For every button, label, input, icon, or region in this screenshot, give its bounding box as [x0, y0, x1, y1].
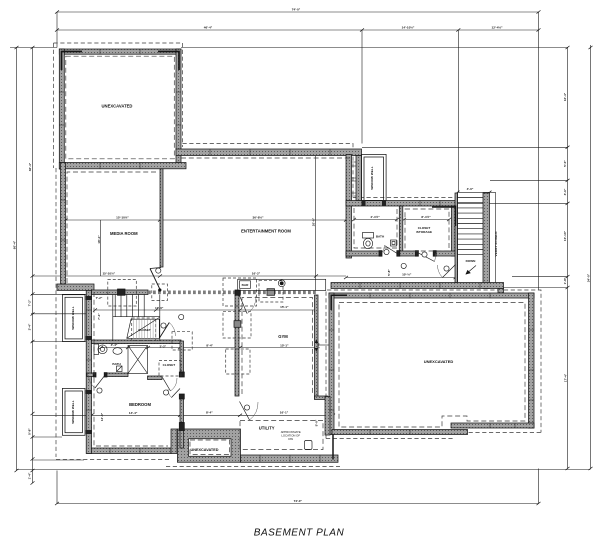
- svg-text:4'-4": 4'-4": [111, 343, 118, 347]
- svg-text:5'-0": 5'-0": [315, 419, 319, 426]
- svg-text:12'-0": 12'-0": [100, 412, 104, 421]
- svg-text:36'-8½": 36'-8½": [253, 216, 265, 220]
- svg-text:16'-1": 16'-1": [280, 410, 289, 414]
- svg-text:12'-4½": 12'-4½": [492, 26, 504, 30]
- svg-text:UNEXCAVATED: UNEXCAVATED: [424, 359, 454, 364]
- svg-text:DOWN: DOWN: [466, 259, 477, 263]
- svg-text:3'-0": 3'-0": [317, 341, 321, 348]
- svg-text:GYM: GYM: [278, 334, 288, 339]
- svg-text:UNEXCAVATED: UNEXCAVATED: [102, 104, 133, 109]
- svg-text:8'-4": 8'-4": [206, 344, 213, 348]
- svg-text:34'-0": 34'-0": [587, 273, 591, 282]
- svg-text:14'-4": 14'-4": [129, 411, 138, 415]
- svg-text:BATH: BATH: [112, 362, 121, 366]
- svg-text:10'-½": 10'-½": [402, 272, 412, 276]
- svg-text:CLOSET: CLOSET: [138, 328, 151, 332]
- svg-text:4'-0": 4'-0": [467, 187, 474, 191]
- svg-text:16'-4": 16'-4": [563, 92, 567, 101]
- svg-text:5'-8": 5'-8": [28, 428, 32, 435]
- svg-text:74'-0": 74'-0": [294, 499, 303, 503]
- svg-text:1'-4": 1'-4": [28, 472, 32, 479]
- svg-text:CLOSET: CLOSET: [163, 363, 176, 367]
- svg-text:5'-0": 5'-0": [563, 160, 567, 167]
- svg-text:BAR: BAR: [242, 283, 249, 287]
- svg-text:3'-6": 3'-6": [563, 188, 567, 195]
- svg-text:7'-4": 7'-4": [97, 313, 101, 320]
- svg-text:WINDOW WELL: WINDOW WELL: [71, 306, 75, 329]
- svg-text:16'-2": 16'-2": [252, 272, 261, 276]
- svg-text:MEDIA ROOM: MEDIA ROOM: [110, 231, 138, 236]
- svg-text:ENTERTAINMENT ROOM: ENTERTAINMENT ROOM: [241, 229, 291, 234]
- svg-text:VERIFY IN FIELD: VERIFY IN FIELD: [494, 231, 498, 257]
- svg-text:BEDROOM: BEDROOM: [129, 402, 151, 407]
- svg-text:10'-10": 10'-10": [563, 230, 567, 241]
- svg-text:15'-10½": 15'-10½": [116, 216, 129, 220]
- svg-text:7'-2": 7'-2": [28, 299, 32, 306]
- svg-text:15'-10½": 15'-10½": [102, 272, 115, 276]
- svg-text:WINDOW WELL: WINDOW WELL: [71, 400, 75, 423]
- svg-text:/STORAGE: /STORAGE: [416, 230, 432, 234]
- svg-text:DW: DW: [288, 437, 293, 441]
- svg-text:60'-4": 60'-4": [13, 240, 17, 249]
- svg-text:UTILITY: UTILITY: [259, 426, 275, 431]
- svg-text:1'-8": 1'-8": [563, 277, 567, 284]
- svg-text:8'-4": 8'-4": [206, 410, 213, 414]
- svg-text:UNEXCAVATED: UNEXCAVATED: [190, 448, 218, 452]
- svg-text:7'-2": 7'-2": [96, 296, 103, 300]
- svg-text:3'-4": 3'-4": [28, 323, 32, 330]
- svg-text:CLOSET: CLOSET: [418, 226, 431, 230]
- svg-text:3'-2": 3'-2": [159, 344, 166, 348]
- svg-text:WINDOW WELL: WINDOW WELL: [370, 166, 374, 189]
- svg-text:8'-4½": 8'-4½": [421, 215, 431, 219]
- svg-text:4'-4½": 4'-4½": [370, 215, 380, 219]
- svg-text:BASEMENT PLAN: BASEMENT PLAN: [254, 528, 345, 539]
- svg-text:15'-1": 15'-1": [280, 305, 289, 309]
- svg-text:20'-0": 20'-0": [312, 217, 316, 226]
- svg-text:18'-4": 18'-4": [97, 235, 101, 244]
- svg-text:36'-4": 36'-4": [28, 162, 32, 171]
- svg-text:74'-0": 74'-0": [292, 8, 301, 12]
- svg-text:5'-8": 5'-8": [387, 269, 391, 276]
- svg-text:14'-10½": 14'-10½": [402, 26, 415, 30]
- svg-text:15'-1": 15'-1": [280, 344, 289, 348]
- svg-text:17'-4": 17'-4": [564, 373, 568, 382]
- svg-text:46'-4": 46'-4": [204, 26, 213, 30]
- svg-text:13'-0": 13'-0": [155, 306, 164, 310]
- svg-text:BATH: BATH: [376, 235, 385, 239]
